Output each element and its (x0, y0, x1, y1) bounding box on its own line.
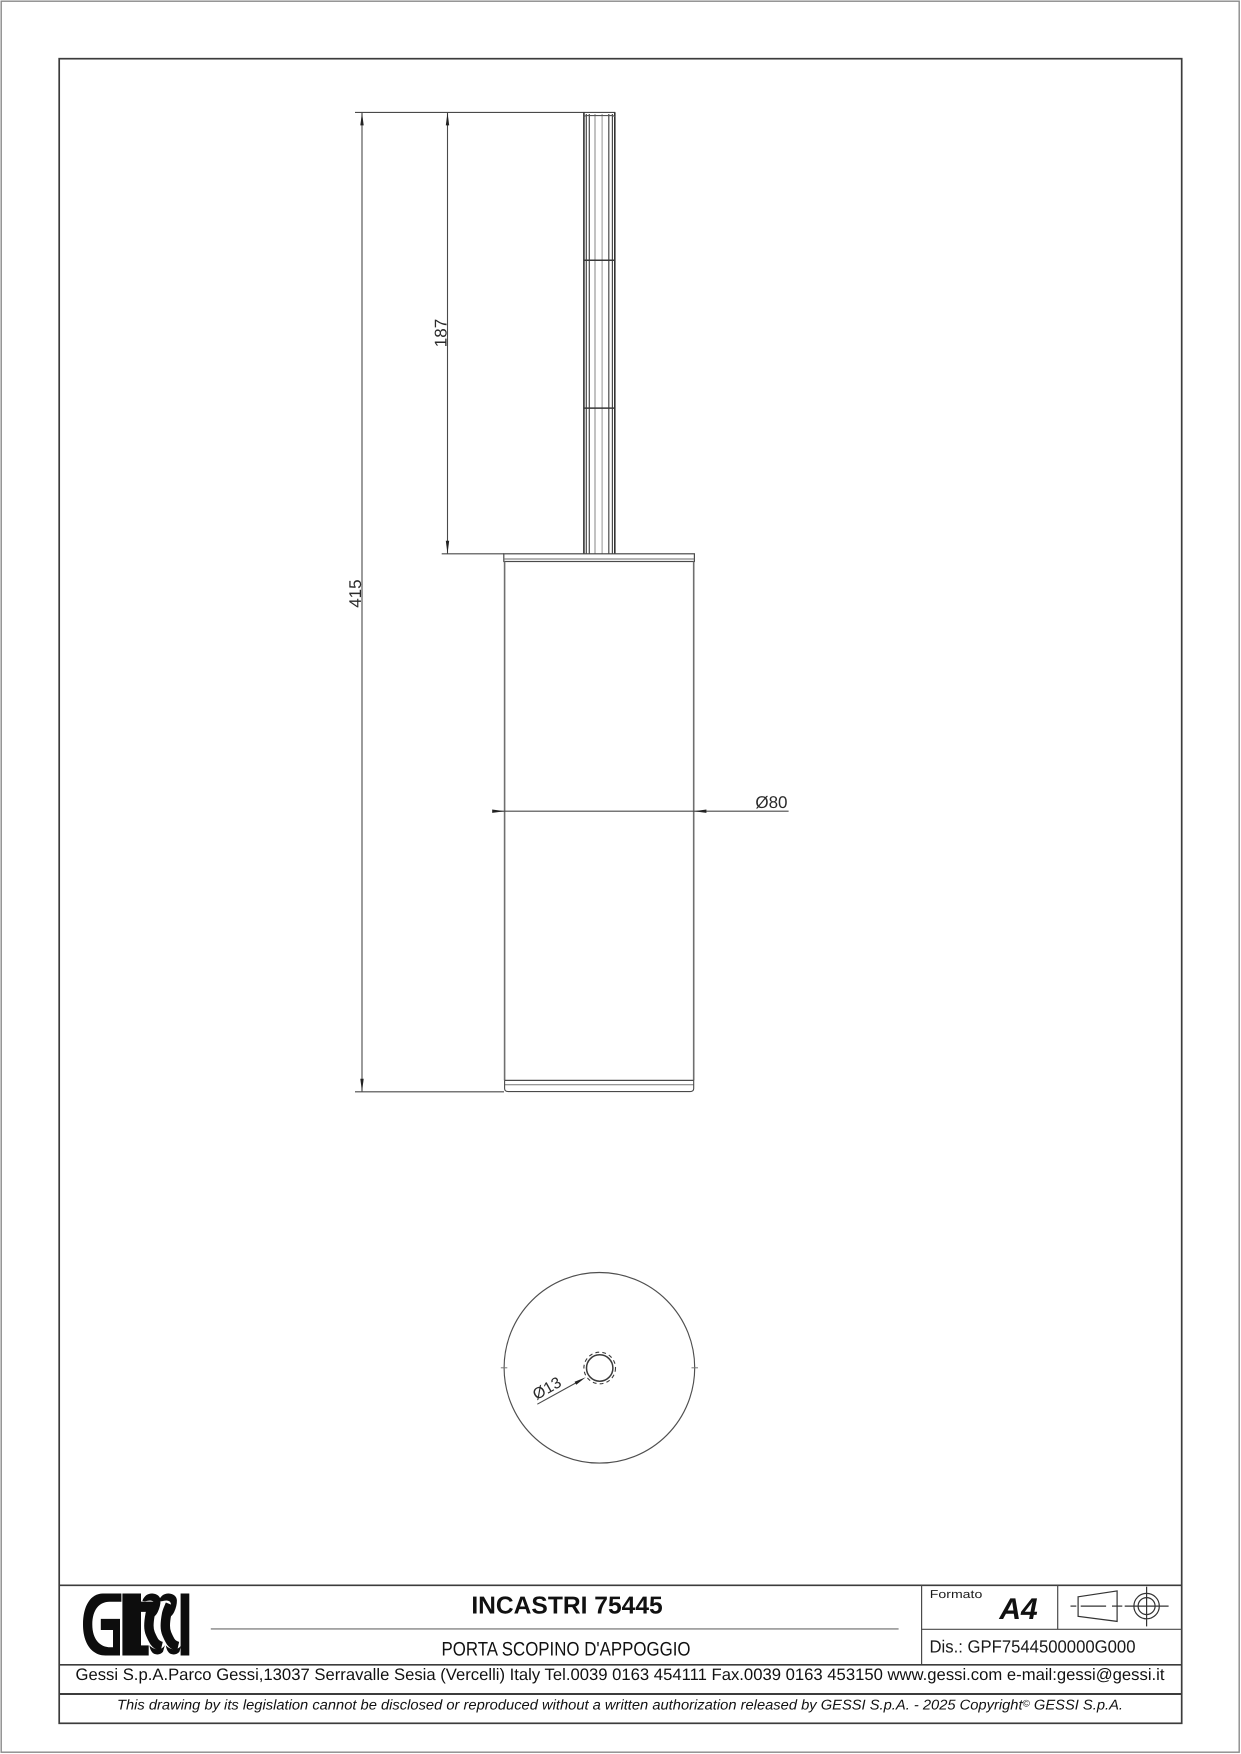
svg-text:Ø80: Ø80 (755, 793, 787, 812)
svg-text:This drawing by its legislatio: This drawing by its legislation cannot b… (117, 1698, 1123, 1714)
svg-text:187: 187 (431, 319, 450, 347)
svg-text:Dis.: GPF7544500000G000: Dis.: GPF7544500000G000 (930, 1637, 1136, 1657)
svg-text:PORTA SCOPINO D'APPOGGIO: PORTA SCOPINO D'APPOGGIO (442, 1639, 691, 1661)
svg-text:INCASTRI 75445: INCASTRI 75445 (471, 1592, 662, 1619)
svg-text:415: 415 (346, 579, 365, 607)
svg-text:A4: A4 (998, 1593, 1038, 1626)
svg-text:Formato: Formato (930, 1589, 983, 1601)
svg-text:Ø13: Ø13 (530, 1374, 565, 1404)
svg-text:Gessi S.p.A.Parco Gessi,13037: Gessi S.p.A.Parco Gessi,13037 Serravalle… (76, 1665, 1165, 1684)
